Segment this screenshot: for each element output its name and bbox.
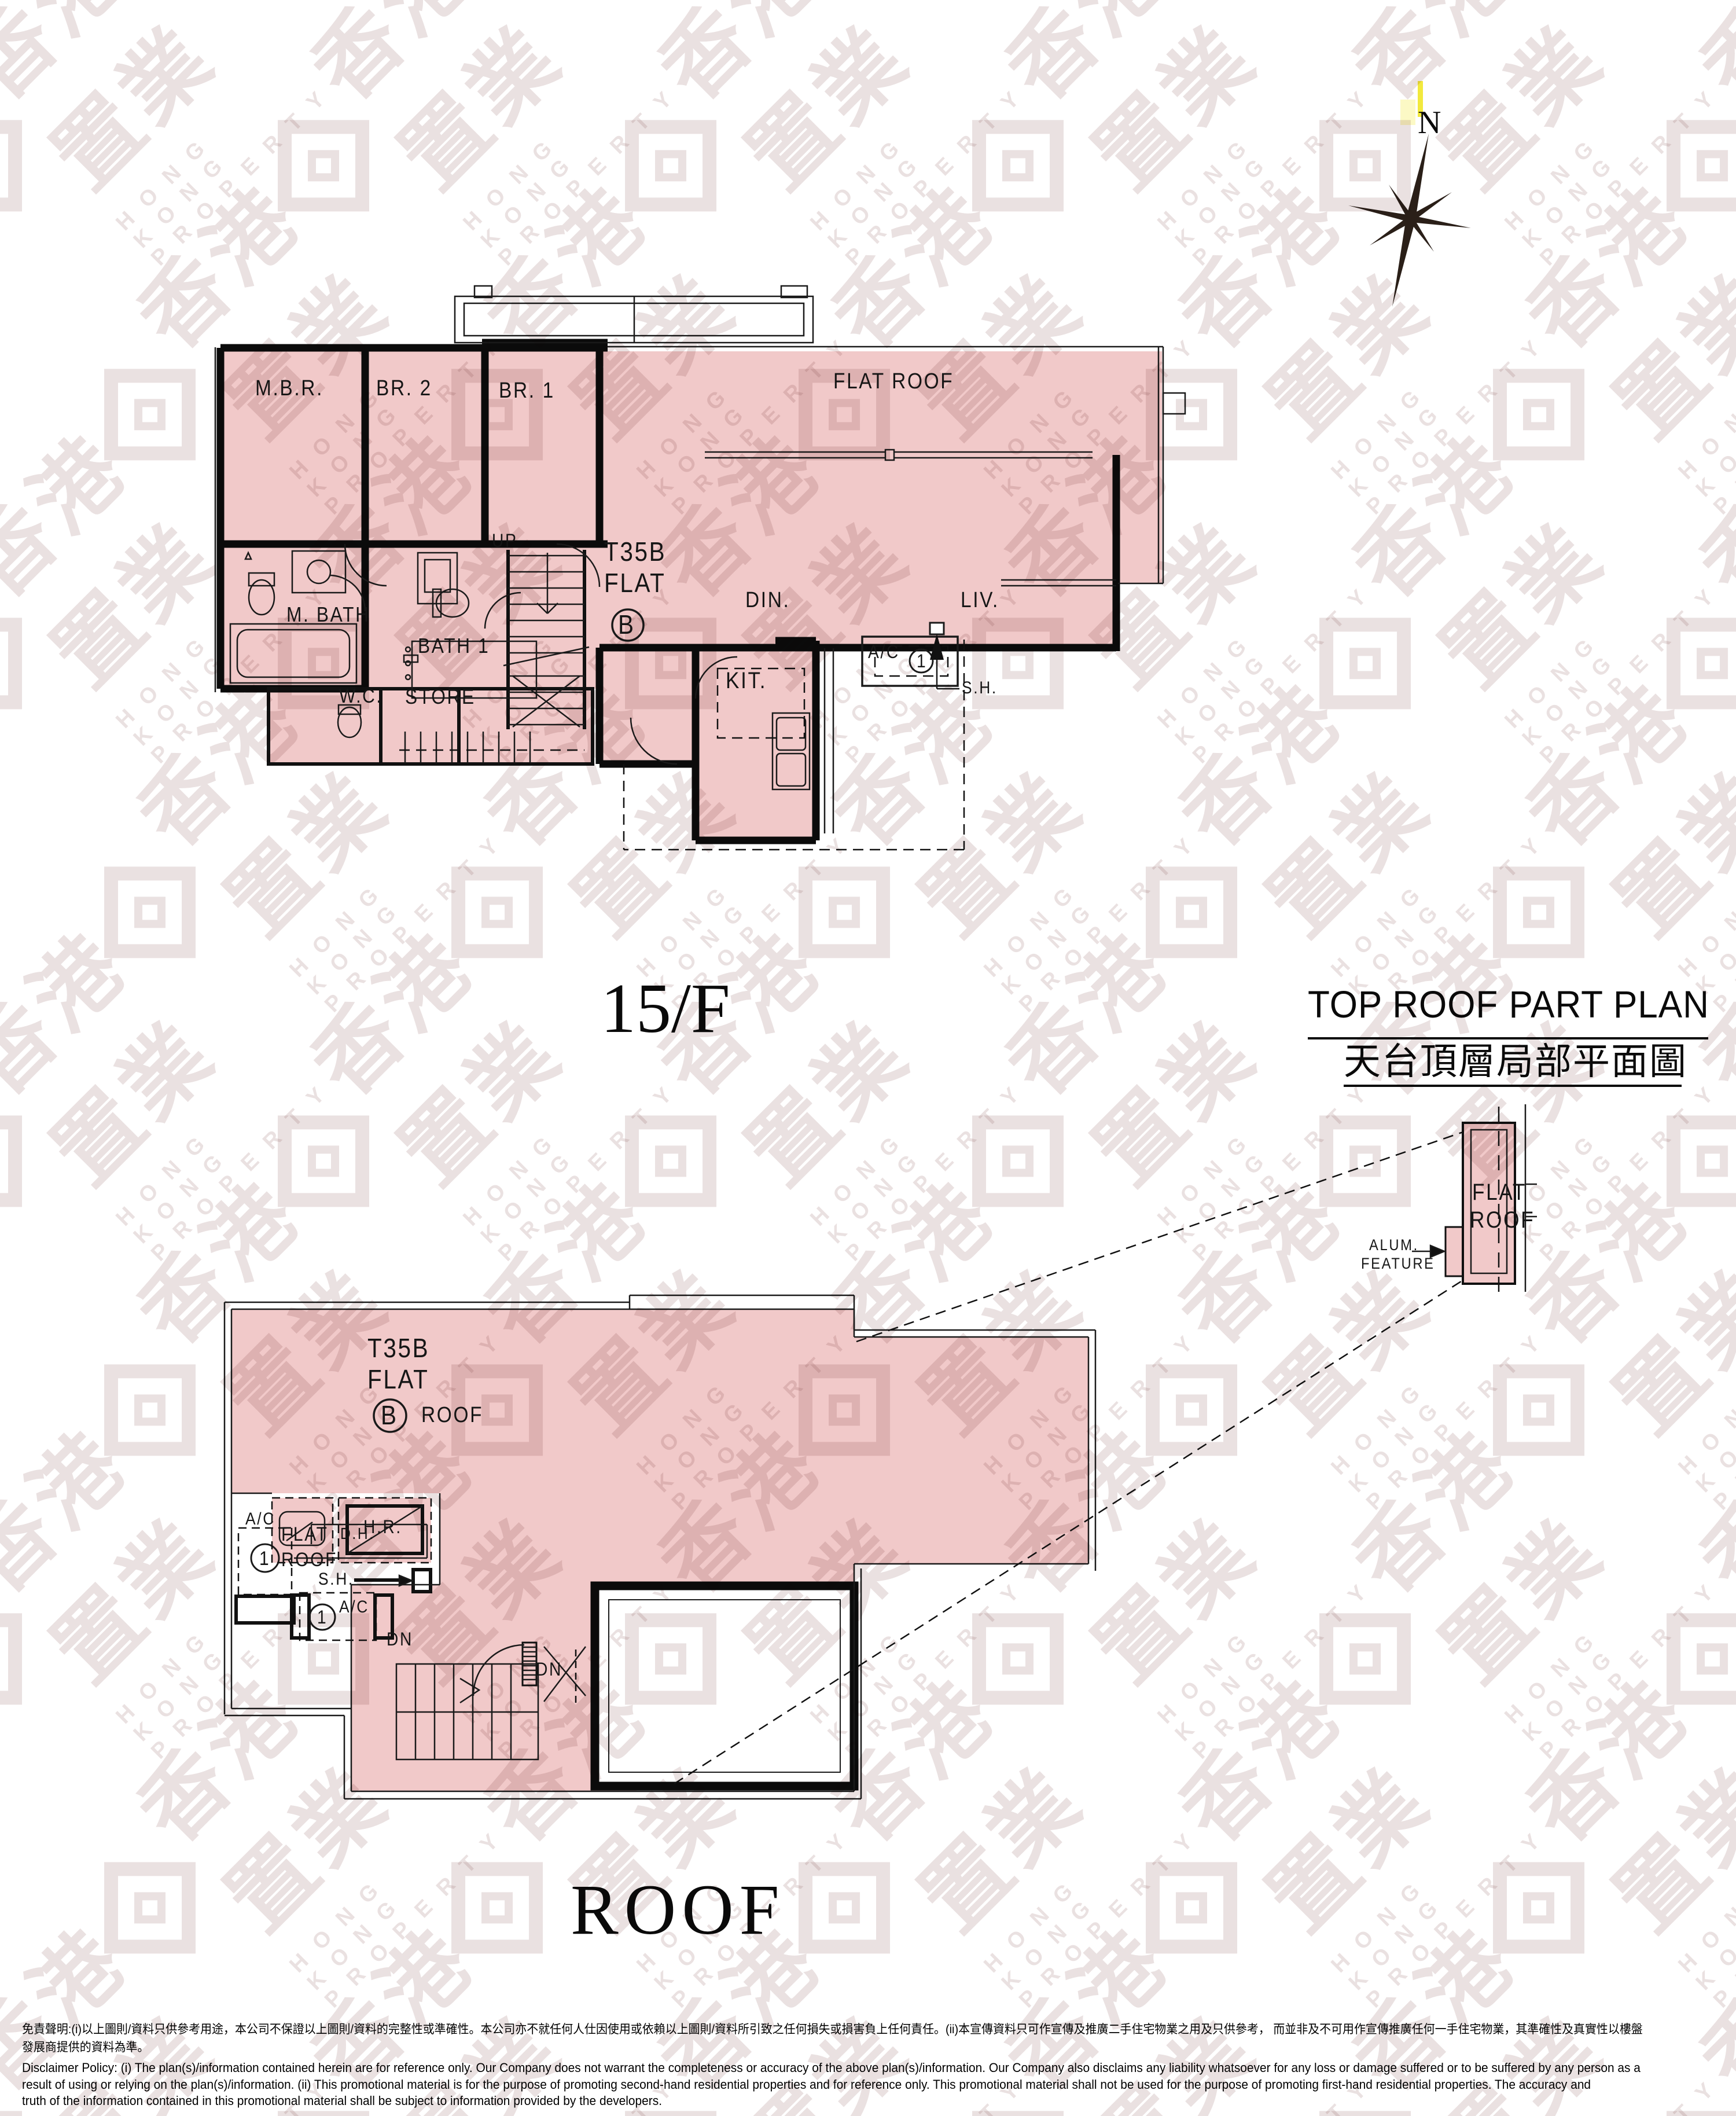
disclaimer-en-line3: truth of the information contained in th… (22, 2093, 662, 2108)
unit-roof-word: ROOF (421, 1404, 483, 1426)
room-label-wc: W.C. (339, 686, 382, 706)
title-underline-zh (1344, 1085, 1682, 1087)
plan-title-roof: ROOF (571, 1874, 785, 1946)
unit-flat-word-roof: FLAT (367, 1366, 429, 1393)
disclaimer-zh-line2: 發展商提供的資料為準。 (22, 2038, 149, 2055)
room-label-m-bath: M. BATH (286, 604, 370, 625)
room-label-flat-roof-15f: FLAT ROOF (833, 370, 954, 392)
room-label-liv: LIV. (961, 589, 999, 611)
ac-lower-label-roof: A/C (339, 1599, 369, 1616)
ac-label-15f: A/C (868, 642, 900, 661)
title-underline-en (1308, 1037, 1708, 1039)
dn-label-upper: DN (387, 1630, 413, 1648)
room-label-din: DIN. (745, 589, 790, 611)
alum-feature-line2: FEATURE (1361, 1256, 1435, 1272)
roof-roof-word: ROOF (281, 1550, 337, 1570)
disclaimer-en-line2: result of using or relying on the plan(s… (22, 2077, 1591, 2092)
stairs-up-label: UP (492, 531, 517, 550)
disclaimer-en-line1: Disclaimer Policy: (i) The plan(s)/infor… (22, 2060, 1641, 2075)
part-plan-roof-word: ROOF (1470, 1208, 1535, 1232)
ac-top-label-roof: A/C (245, 1511, 275, 1528)
disclaimer-zh-line1: 免責聲明:(i)以上圖則/資料只供參考用途，本公司不保證以上圖則/資料的完整性或… (22, 2020, 1643, 2037)
unit-block-label-roof: T35B (367, 1335, 429, 1361)
dh-label: D.H. (340, 1526, 375, 1542)
unit-flat-word-15f: FLAT (604, 570, 666, 596)
room-label-bath1: BATH 1 (418, 635, 490, 656)
ac-top-number-roof: 1 (259, 1549, 270, 1568)
top-roof-part-plan-title-zh: 天台頂層局部平面圖 (1344, 1043, 1687, 1080)
part-plan-flat-word: FLAT (1472, 1181, 1527, 1204)
alum-feature-line1: ALUM. (1369, 1237, 1419, 1253)
ac-lower-number-roof: 1 (317, 1608, 328, 1626)
plan-title-15f: 15/F (601, 973, 730, 1044)
ac-number-15f: 1 (917, 652, 927, 670)
room-label-mbr: M.B.R. (255, 377, 323, 399)
unit-block-label-15f: T35B (604, 538, 666, 565)
floor-plan-page: N M.B.R. BR. 2 BR. 1 FLAT ROOF T35B FLAT… (0, 0, 1736, 2116)
dn-label-lower: DN (536, 1660, 562, 1678)
compass-north-label: N (1418, 106, 1441, 139)
sh-label-roof: S.H. (318, 1571, 354, 1588)
unit-flat-letter-roof: B (381, 1402, 398, 1428)
room-label-br2: BR. 2 (376, 377, 432, 399)
sh-label-15f: S.H. (962, 679, 998, 697)
unit-flat-letter-15f: B (618, 611, 635, 638)
top-roof-part-plan-title-en: TOP ROOF PART PLAN (1308, 985, 1709, 1023)
room-label-kit: KIT. (726, 669, 767, 692)
room-label-store: STORE (405, 686, 476, 707)
room-label-br1: BR. 1 (499, 380, 555, 402)
roof-flat-word: FLAT (281, 1524, 328, 1544)
